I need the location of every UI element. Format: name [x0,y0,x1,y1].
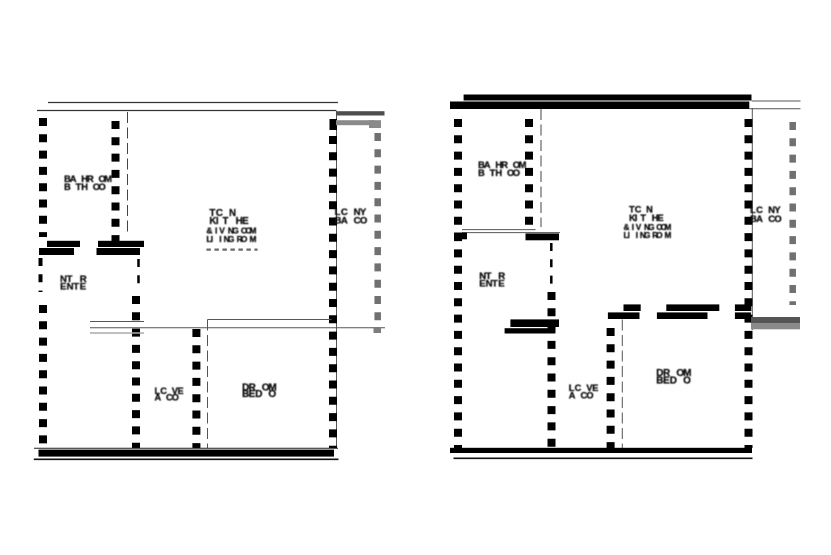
svg-text:B TH OO: B TH OO [478,167,520,178]
svg-text:ENTE: ENTE [60,281,87,292]
svg-text:BED O: BED O [656,376,691,387]
svg-text:A CO: A CO [155,393,179,403]
svg-text:KIT HE: KIT HE [629,213,664,223]
svg-text:A CO: A CO [569,391,594,401]
svg-text:BED O: BED O [242,389,276,400]
svg-text:ENTE: ENTE [479,279,505,290]
svg-text:B TH OO: B TH OO [64,181,106,192]
